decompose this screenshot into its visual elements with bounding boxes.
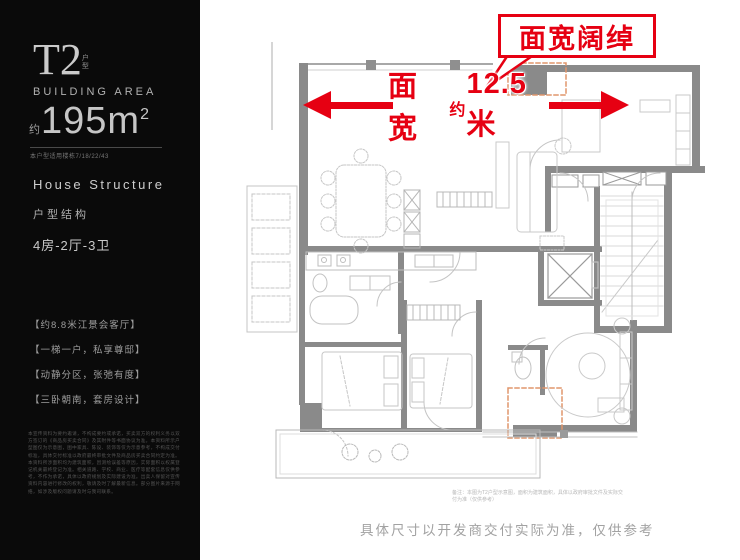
legal-disclaimer: 本宣传资料为要约邀请，不构成要约或承诺，买卖双方的权利义务以双方签订的《商品房买… xyxy=(28,430,180,495)
building-area-label: BUILDING AREA xyxy=(33,86,156,98)
arrow-left-icon xyxy=(303,91,331,119)
room-layout: 4房-2厅-3卫 xyxy=(33,235,110,254)
unit-code-suffix: 户型 xyxy=(82,54,91,70)
unit-code: T2户型 xyxy=(33,34,91,85)
area-superscript: 2 xyxy=(140,106,149,124)
unit-code-text: T2 xyxy=(33,35,82,84)
highlight-item: 【一梯一户，私享尊邸】 xyxy=(30,338,146,363)
area-number: 195m xyxy=(41,100,140,143)
highlight-list: 【约8.8米江景会客厅】 【一梯一户，私享尊邸】 【动静分区，张弛有度】 【三卧… xyxy=(30,313,146,413)
dimension-approx: 约 xyxy=(449,96,465,120)
arrow-right-icon xyxy=(601,91,629,119)
area-approx: 约 xyxy=(29,121,40,137)
applicable-buildings-note: 本户型适用楼栋7/18/22/43 xyxy=(30,151,109,160)
highlight-item: 【三卧朝南，套房设计】 xyxy=(30,388,146,413)
dimension-label: 面宽 约 12.5米 xyxy=(388,86,556,124)
building-area-value: 约 195m 2 xyxy=(29,100,149,143)
divider xyxy=(30,147,162,148)
house-structure-en: House Structure xyxy=(33,177,164,192)
dimension-prefix: 面宽 xyxy=(388,63,447,147)
info-sidebar: T2户型 BUILDING AREA 约 195m 2 本户型适用楼栋7/18/… xyxy=(0,0,200,560)
house-structure-cn: 户型结构 xyxy=(33,206,89,222)
callout-bubble: 面宽阔绰 xyxy=(498,14,656,58)
highlight-item: 【约8.8米江景会客厅】 xyxy=(30,313,146,338)
dimension-value: 12.5米 xyxy=(466,68,556,143)
highlight-item: 【动静分区，张弛有度】 xyxy=(30,363,146,388)
